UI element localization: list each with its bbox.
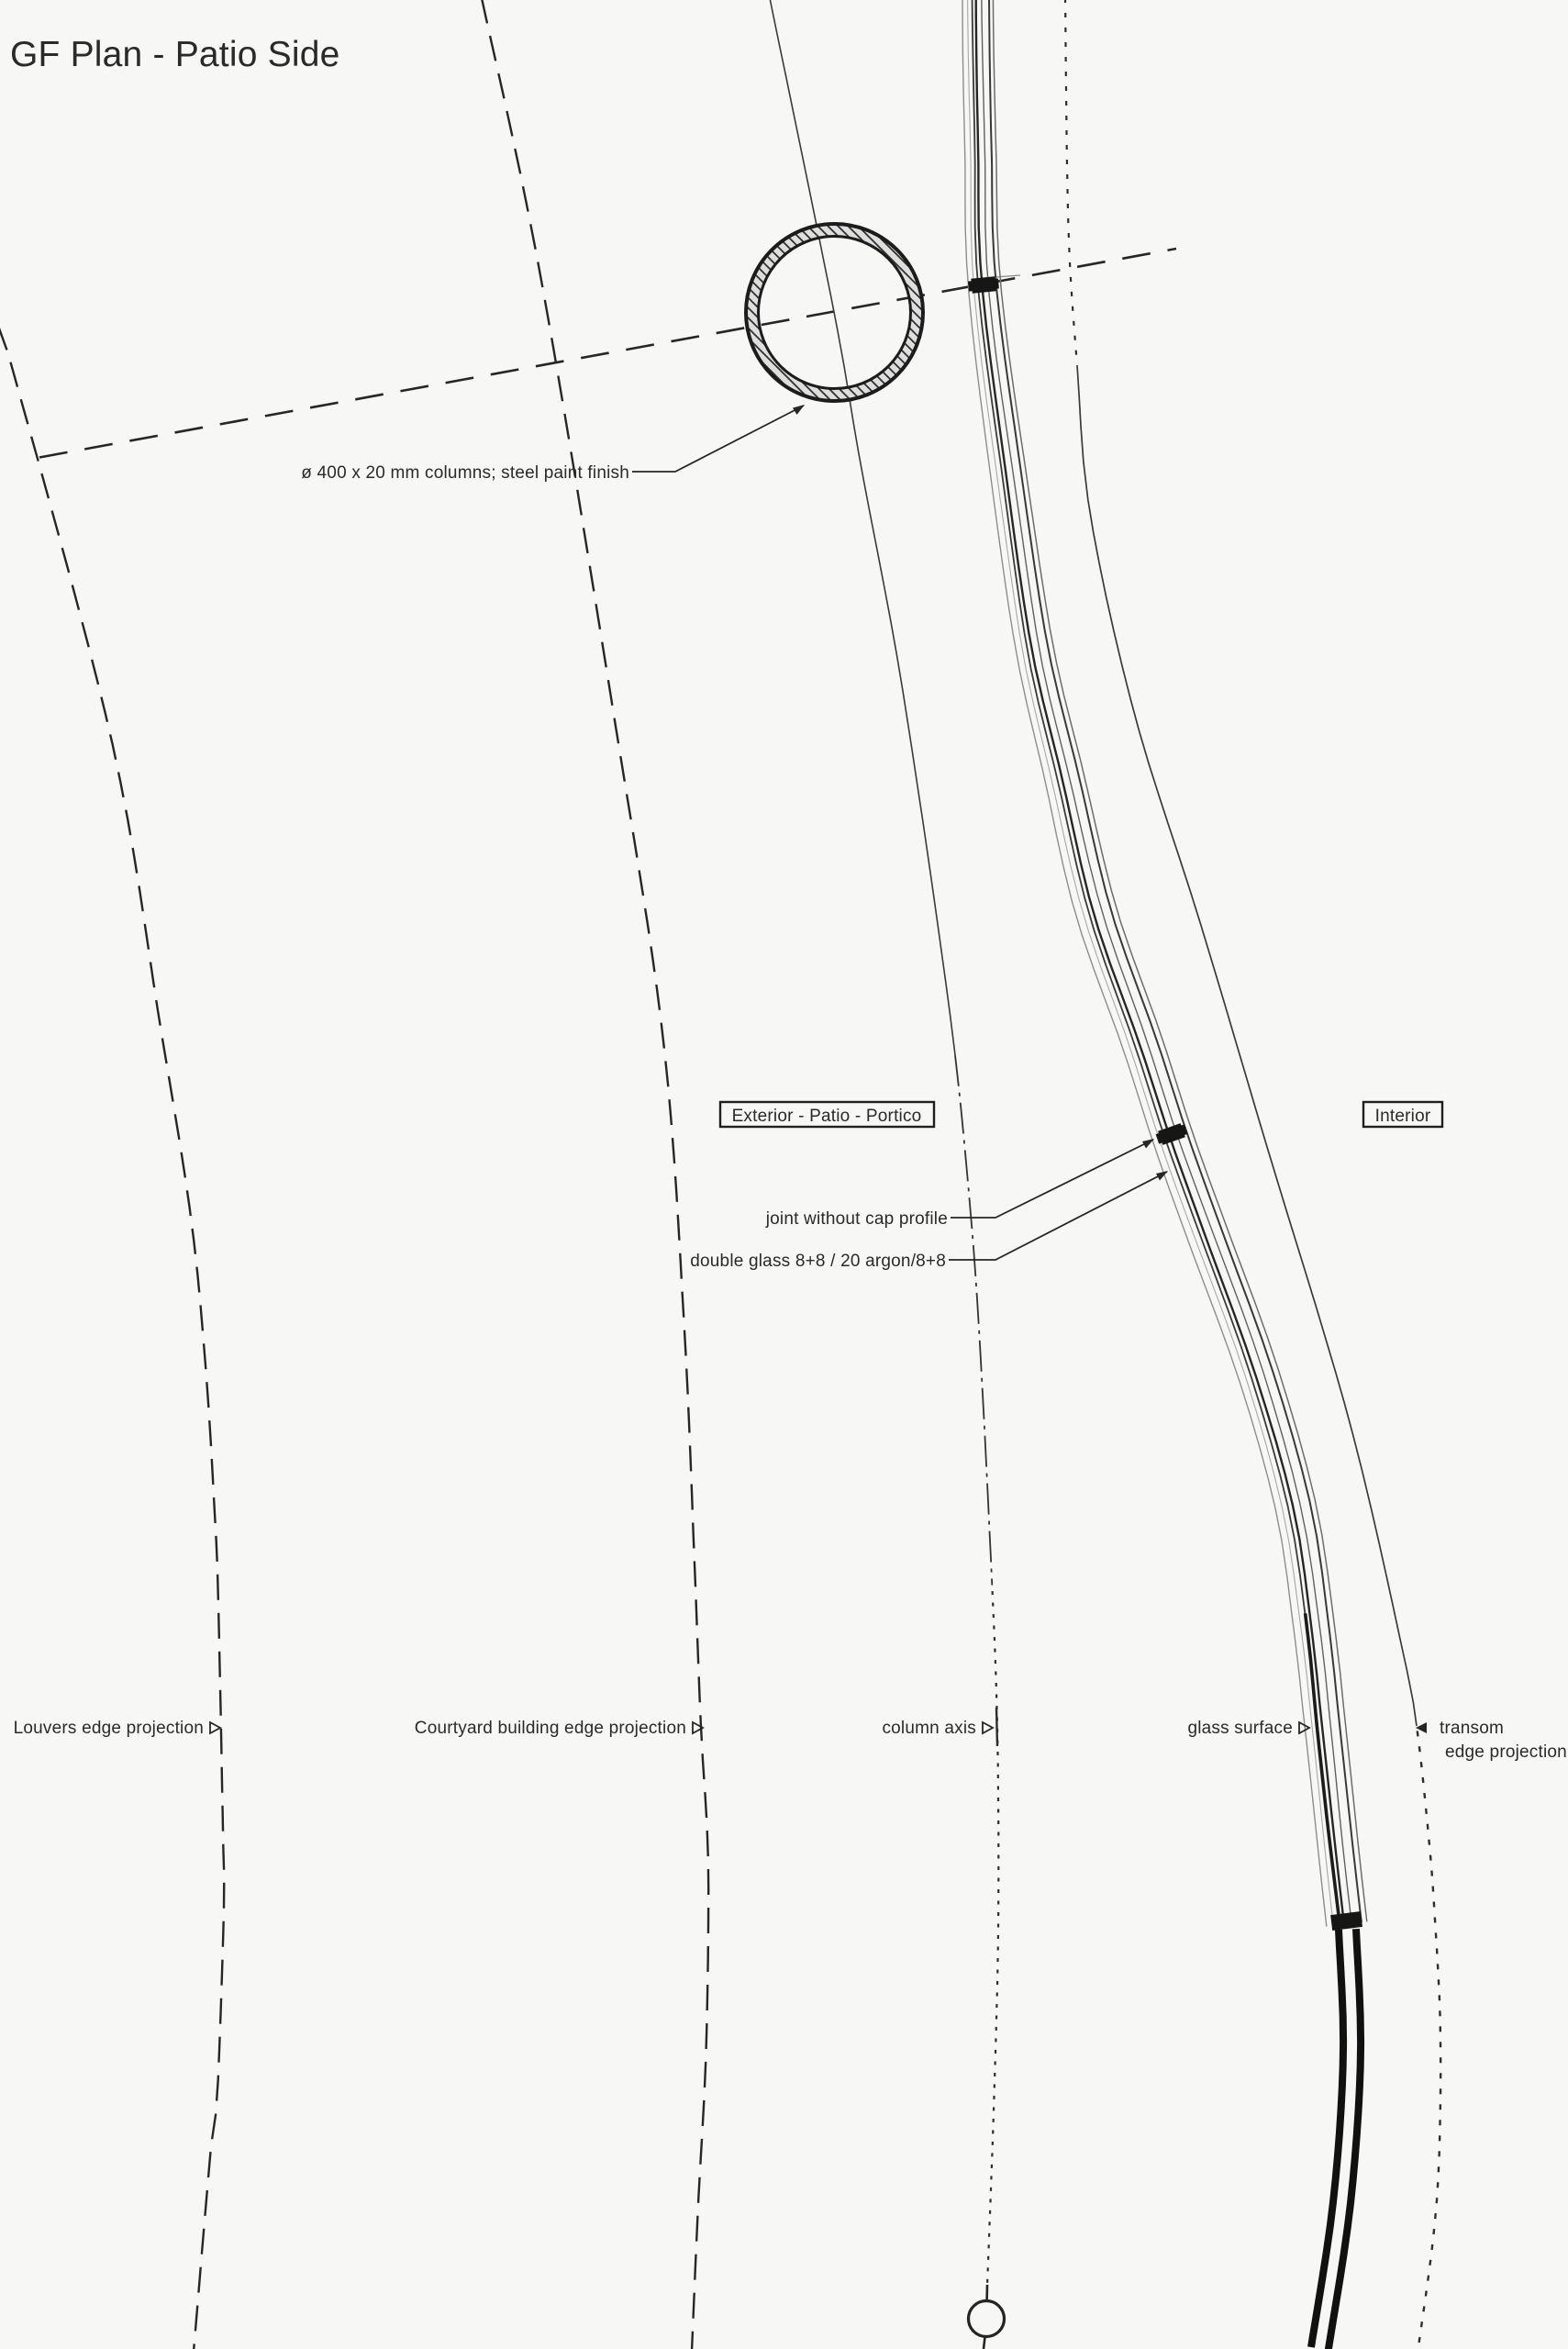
svg-text:Louvers edge projection: Louvers edge projection: [14, 1719, 204, 1738]
svg-text:edge projection: edge projection: [1445, 1742, 1567, 1762]
svg-text:glass surface: glass surface: [1187, 1719, 1293, 1738]
svg-text:column axis: column axis: [882, 1719, 976, 1738]
svg-text:ø 400 x 20 mm columns; steel p: ø 400 x 20 mm columns; steel paint finis…: [301, 463, 629, 483]
svg-text:joint without cap profile: joint without cap profile: [765, 1209, 948, 1229]
svg-text:Interior: Interior: [1375, 1107, 1431, 1126]
svg-text:double glass 8+8 / 20 argon/8+: double glass 8+8 / 20 argon/8+8: [690, 1252, 946, 1271]
svg-text:transom: transom: [1440, 1719, 1504, 1738]
svg-text:Courtyard building edge projec: Courtyard building edge projection: [415, 1719, 686, 1738]
svg-text:Exterior - Patio - Portico: Exterior - Patio - Portico: [732, 1107, 922, 1126]
svg-text:GF Plan - Patio Side: GF Plan - Patio Side: [10, 35, 340, 74]
